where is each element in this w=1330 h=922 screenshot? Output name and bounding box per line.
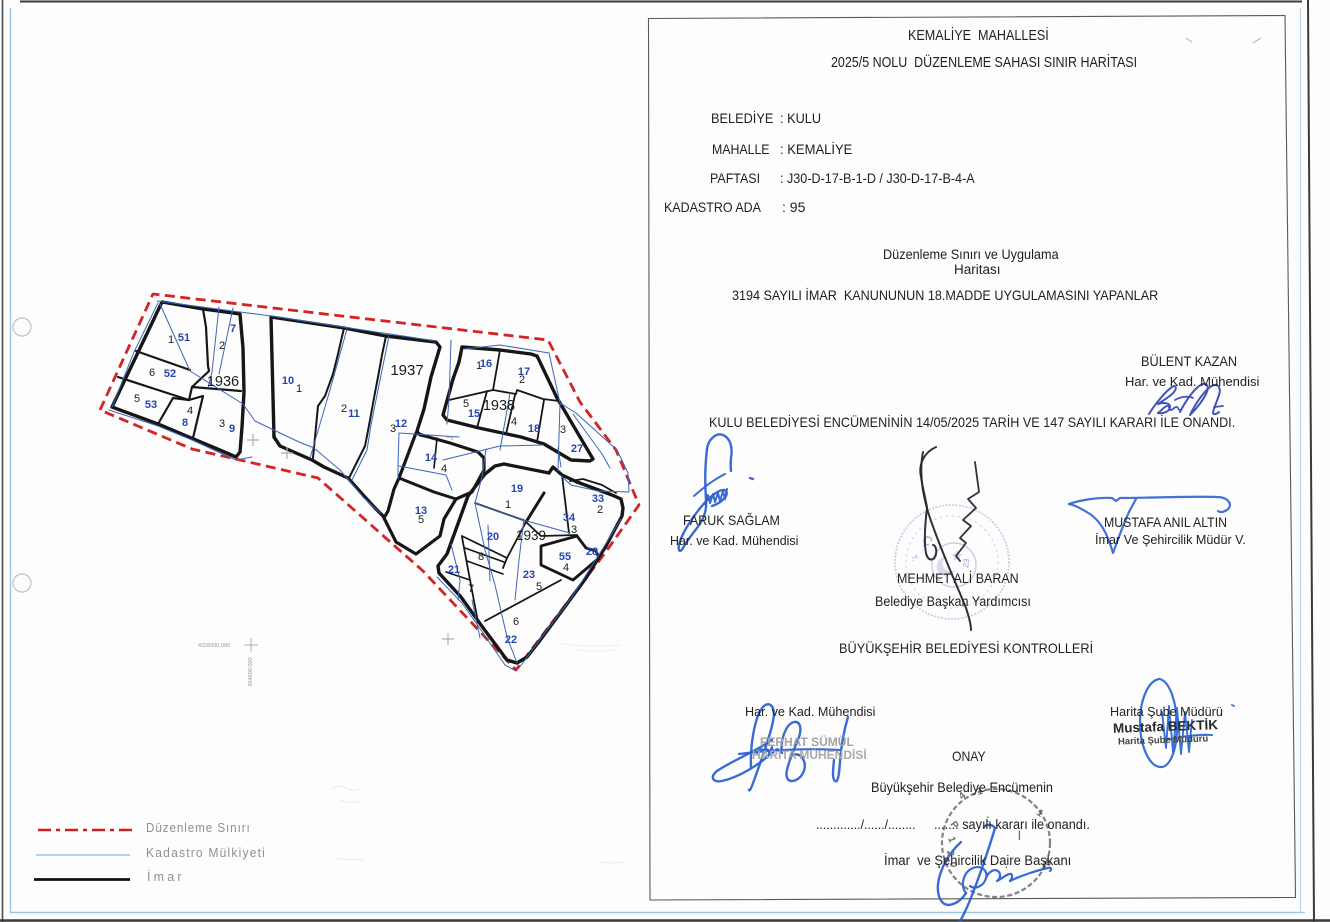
svg-text:15: 15: [468, 408, 480, 420]
svg-text:20: 20: [487, 531, 499, 543]
svg-text:51: 51: [178, 332, 190, 344]
svg-text:1938: 1938: [483, 398, 515, 414]
svg-text:8: 8: [478, 551, 484, 563]
svg-text:T.: T.: [909, 554, 920, 563]
svg-text:53: 53: [145, 399, 157, 411]
svg-text:6: 6: [513, 616, 519, 628]
svg-text:52: 52: [164, 368, 176, 380]
svg-text:23: 23: [961, 557, 972, 568]
svg-text:3: 3: [560, 424, 566, 436]
svg-text:4: 4: [441, 463, 447, 475]
svg-text:34: 34: [563, 512, 576, 524]
svg-text:19: 19: [511, 483, 523, 495]
svg-text:23: 23: [523, 569, 535, 581]
svg-text:2: 2: [597, 504, 603, 516]
svg-text:2: 2: [219, 340, 225, 352]
svg-text:18: 18: [528, 423, 540, 435]
svg-text:3: 3: [390, 423, 396, 435]
svg-text:504600.000: 504600.000: [248, 657, 254, 686]
svg-text:21: 21: [448, 564, 460, 576]
svg-text:Ç: Ç: [919, 532, 936, 550]
svg-text:14: 14: [425, 452, 438, 464]
svg-text:1: 1: [945, 835, 957, 844]
svg-text:1: 1: [296, 383, 302, 395]
svg-text:1939: 1939: [516, 528, 546, 543]
svg-text:1: 1: [168, 334, 174, 346]
svg-text:4: 4: [563, 562, 569, 574]
svg-text:28: 28: [586, 546, 598, 558]
svg-text:11: 11: [348, 408, 360, 420]
svg-text:4: 4: [187, 405, 193, 417]
svg-text:4328200.000: 4328200.000: [198, 643, 230, 649]
svg-text:10: 10: [282, 375, 294, 387]
svg-text:12: 12: [395, 418, 407, 430]
svg-text:2: 2: [519, 374, 525, 386]
svg-text:9: 9: [229, 423, 235, 435]
svg-text:2: 2: [341, 403, 347, 415]
svg-text:5: 5: [463, 398, 469, 410]
svg-text:3: 3: [219, 418, 225, 430]
svg-text:6: 6: [149, 367, 155, 379]
svg-text:1937: 1937: [390, 362, 423, 379]
svg-text:1936: 1936: [207, 374, 239, 390]
svg-text:7: 7: [468, 583, 474, 595]
svg-text:5: 5: [134, 393, 140, 405]
svg-text:1: 1: [476, 360, 482, 372]
svg-text:3: 3: [571, 524, 577, 536]
svg-text:7: 7: [230, 323, 236, 335]
svg-text:5: 5: [418, 514, 424, 526]
svg-text:22: 22: [505, 634, 517, 646]
svg-text:4: 4: [511, 416, 517, 428]
svg-text:1: 1: [505, 499, 511, 511]
svg-text:5: 5: [536, 581, 542, 593]
svg-text:27: 27: [571, 443, 583, 455]
svg-text:8: 8: [182, 417, 188, 429]
